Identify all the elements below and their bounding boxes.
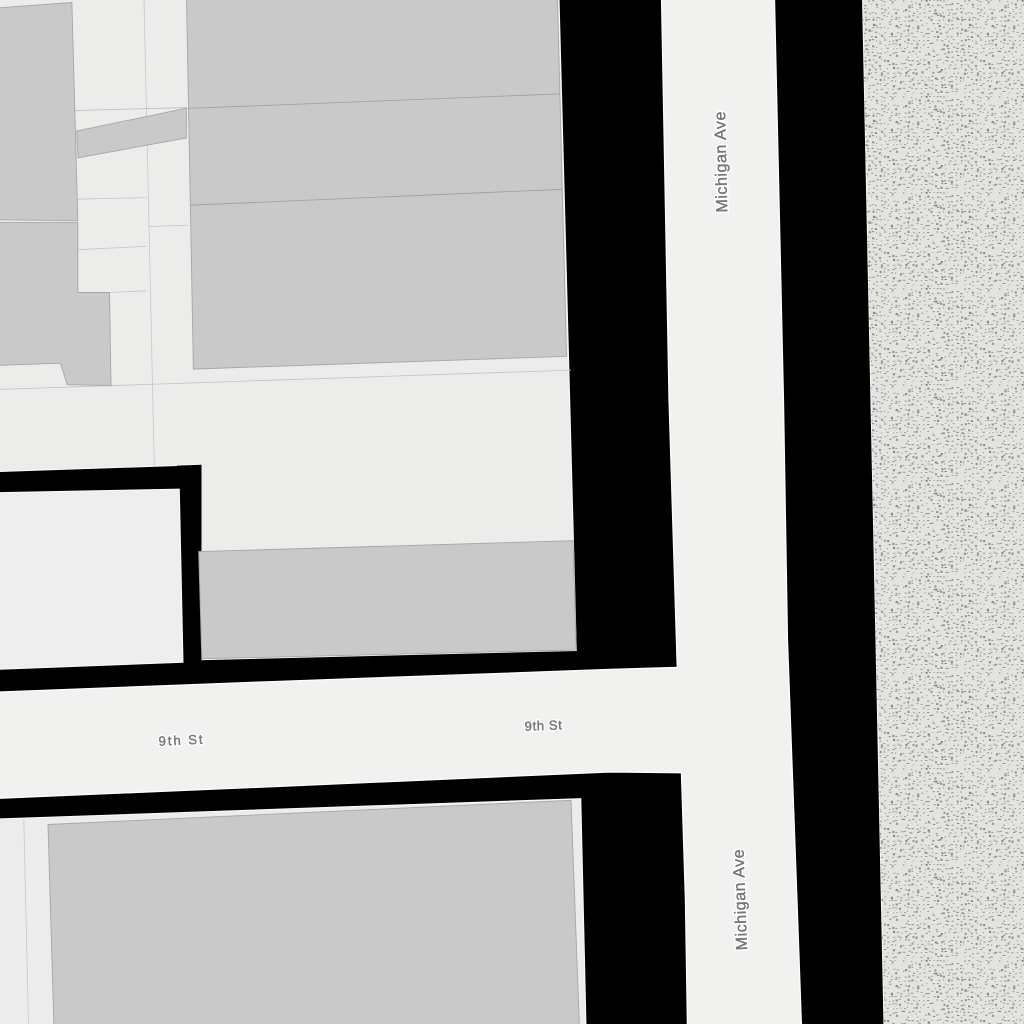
svg-text:9th St: 9th St xyxy=(524,717,562,733)
svg-text:9th St: 9th St xyxy=(158,732,204,749)
svg-text:Michigan Ave: Michigan Ave xyxy=(731,849,752,951)
svg-text:Michigan Ave: Michigan Ave xyxy=(712,111,731,213)
